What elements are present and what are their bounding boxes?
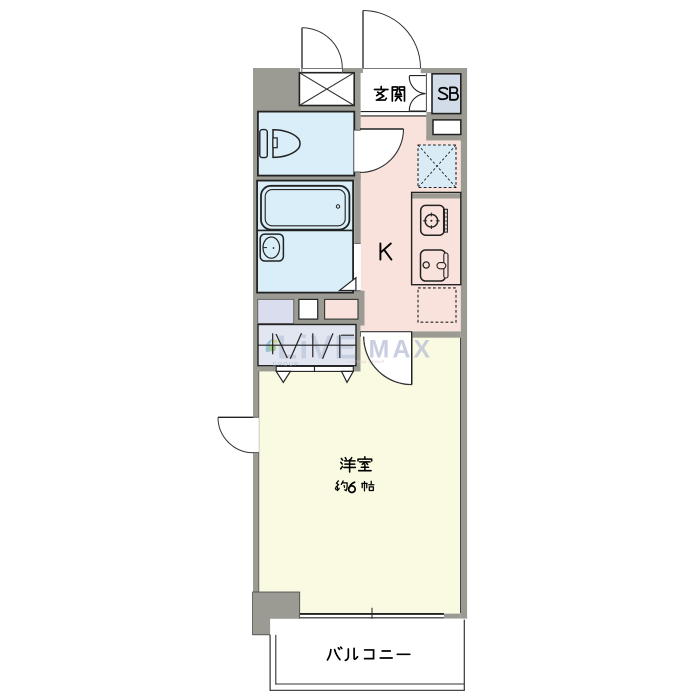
svg-text:GROUP: GROUP [273, 362, 300, 368]
svg-text:LiVEMAX GROUP: LiVEMAX GROUP [348, 359, 385, 364]
svg-text:LiVE: LiVE [277, 329, 358, 366]
